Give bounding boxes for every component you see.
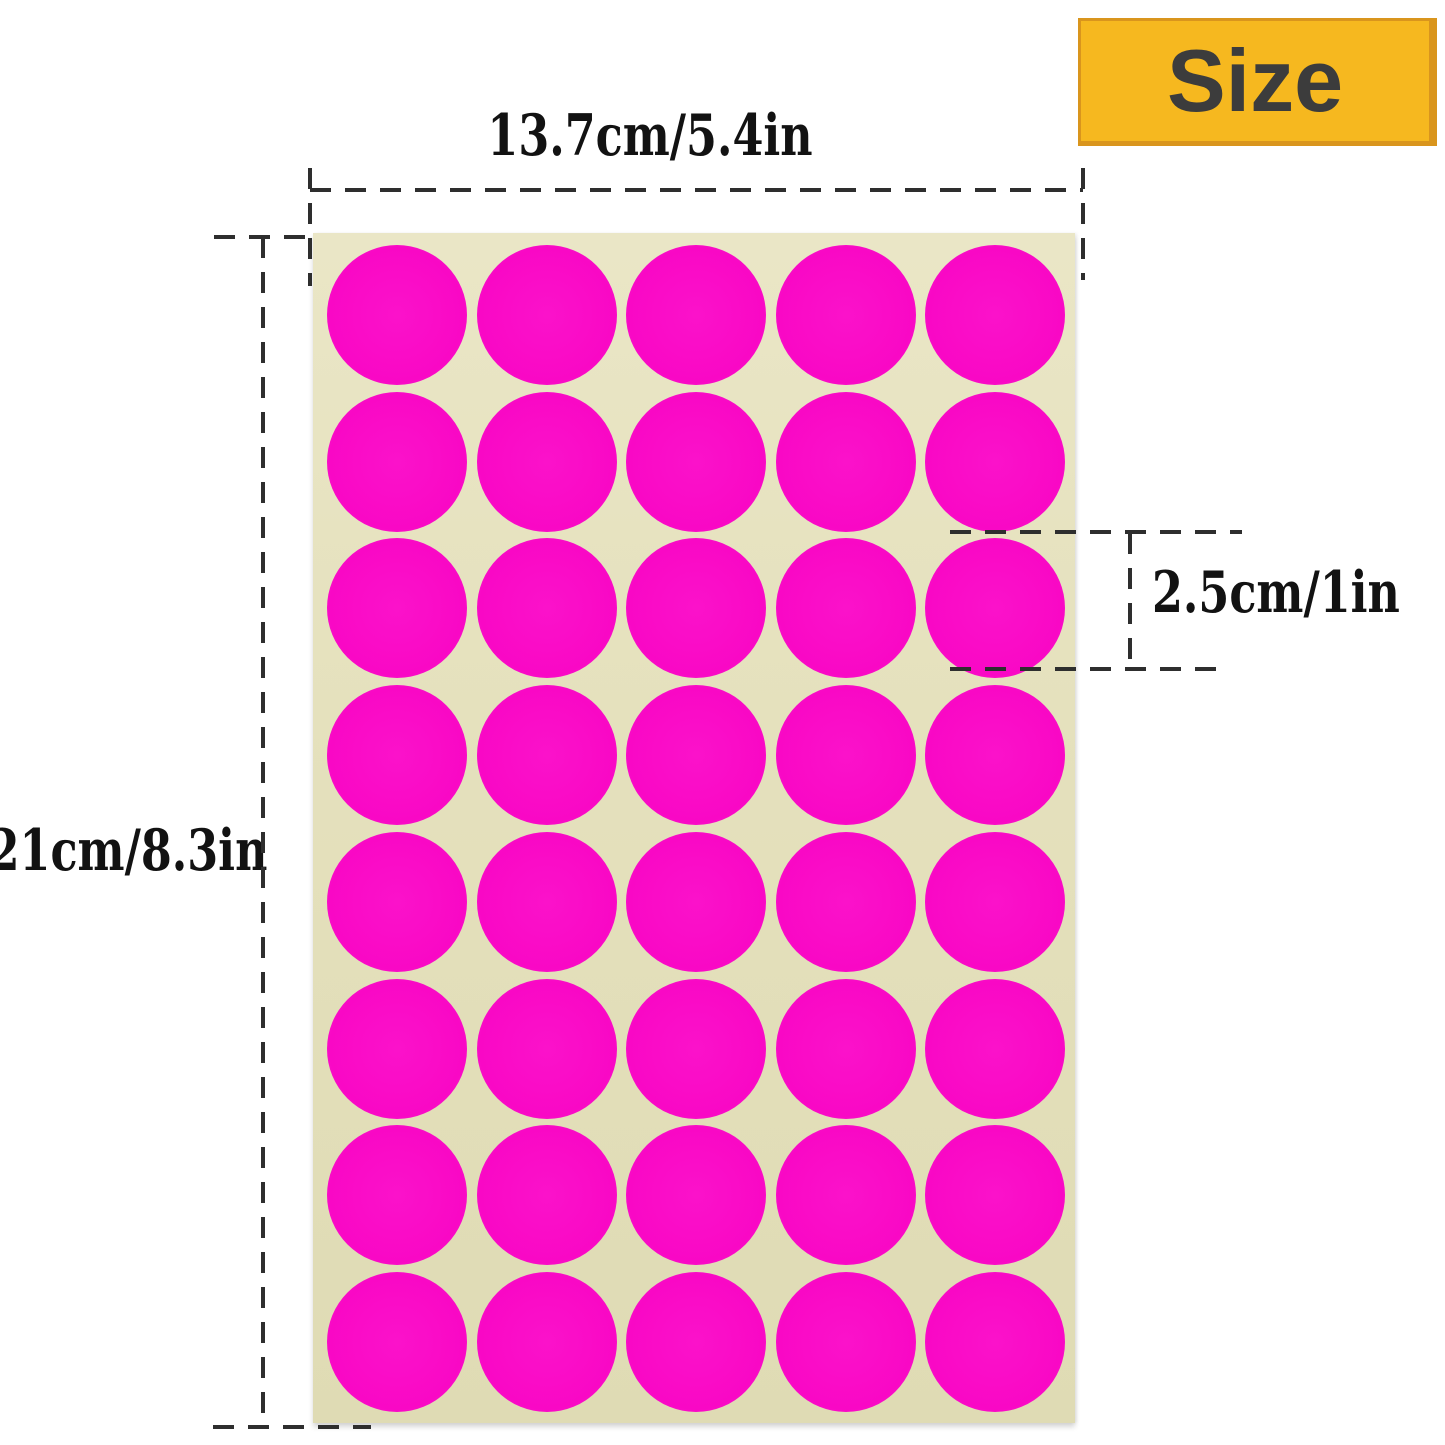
sticker-dot — [925, 1272, 1065, 1412]
width-dimension-tick-right — [1081, 168, 1085, 280]
dot-dimension-line-top — [950, 530, 1242, 534]
width-dimension-tick-left — [308, 168, 312, 286]
dot-dimension-line-bottom — [950, 667, 1220, 671]
sticker-dot — [477, 832, 617, 972]
sticker-dot — [327, 392, 467, 532]
sticker-dot — [925, 392, 1065, 532]
sticker-dot — [477, 245, 617, 385]
sticker-dot — [477, 685, 617, 825]
sticker-dot — [327, 1125, 467, 1265]
sticker-dot — [925, 832, 1065, 972]
sticker-dot — [626, 685, 766, 825]
sticker-dot — [776, 685, 916, 825]
height-dimension-tick-bottom — [213, 1425, 371, 1429]
sticker-dot — [477, 1125, 617, 1265]
sticker-dot — [626, 832, 766, 972]
height-dimension-tick-top — [214, 235, 313, 239]
sticker-dot — [327, 245, 467, 385]
sticker-dot — [626, 1125, 766, 1265]
sticker-dot — [477, 392, 617, 532]
sticker-dot — [477, 538, 617, 678]
sticker-dot — [776, 1272, 916, 1412]
sticker-dot — [925, 979, 1065, 1119]
sticker-dot — [626, 392, 766, 532]
width-dimension-label: 13.7cm/5.4in — [487, 107, 812, 164]
sticker-dot — [626, 1272, 766, 1412]
sticker-dot — [626, 245, 766, 385]
size-badge: Size — [1078, 18, 1437, 146]
size-badge-label: Size — [1167, 37, 1343, 125]
sticker-dot — [327, 832, 467, 972]
width-dimension-line — [310, 188, 1083, 192]
sticker-dot — [776, 832, 916, 972]
sticker-dot — [327, 1272, 467, 1412]
sticker-dot — [327, 685, 467, 825]
sticker-dot — [327, 538, 467, 678]
dot-dimension-label: 2.5cm/1in — [1152, 564, 1400, 621]
sticker-sheet — [313, 233, 1075, 1423]
height-dimension-line — [261, 237, 265, 1427]
sticker-dot — [327, 979, 467, 1119]
height-dimension-label: 21cm/8.3in — [0, 822, 267, 879]
sticker-dot — [925, 1125, 1065, 1265]
sticker-dot — [477, 979, 617, 1119]
product-size-diagram: 13.7cm/5.4in 21cm/8.3in 2.5cm/1in Size — [0, 0, 1445, 1445]
sticker-dot — [626, 979, 766, 1119]
sticker-dot — [776, 1125, 916, 1265]
sticker-dot — [776, 392, 916, 532]
sticker-dot — [925, 538, 1065, 678]
sticker-dot — [477, 1272, 617, 1412]
dot-dimension-line-vertical — [1128, 533, 1132, 669]
sticker-dot — [626, 538, 766, 678]
sticker-dot — [776, 979, 916, 1119]
sticker-dot — [776, 538, 916, 678]
sticker-dot — [925, 245, 1065, 385]
sticker-dot — [925, 685, 1065, 825]
sticker-dot — [776, 245, 916, 385]
